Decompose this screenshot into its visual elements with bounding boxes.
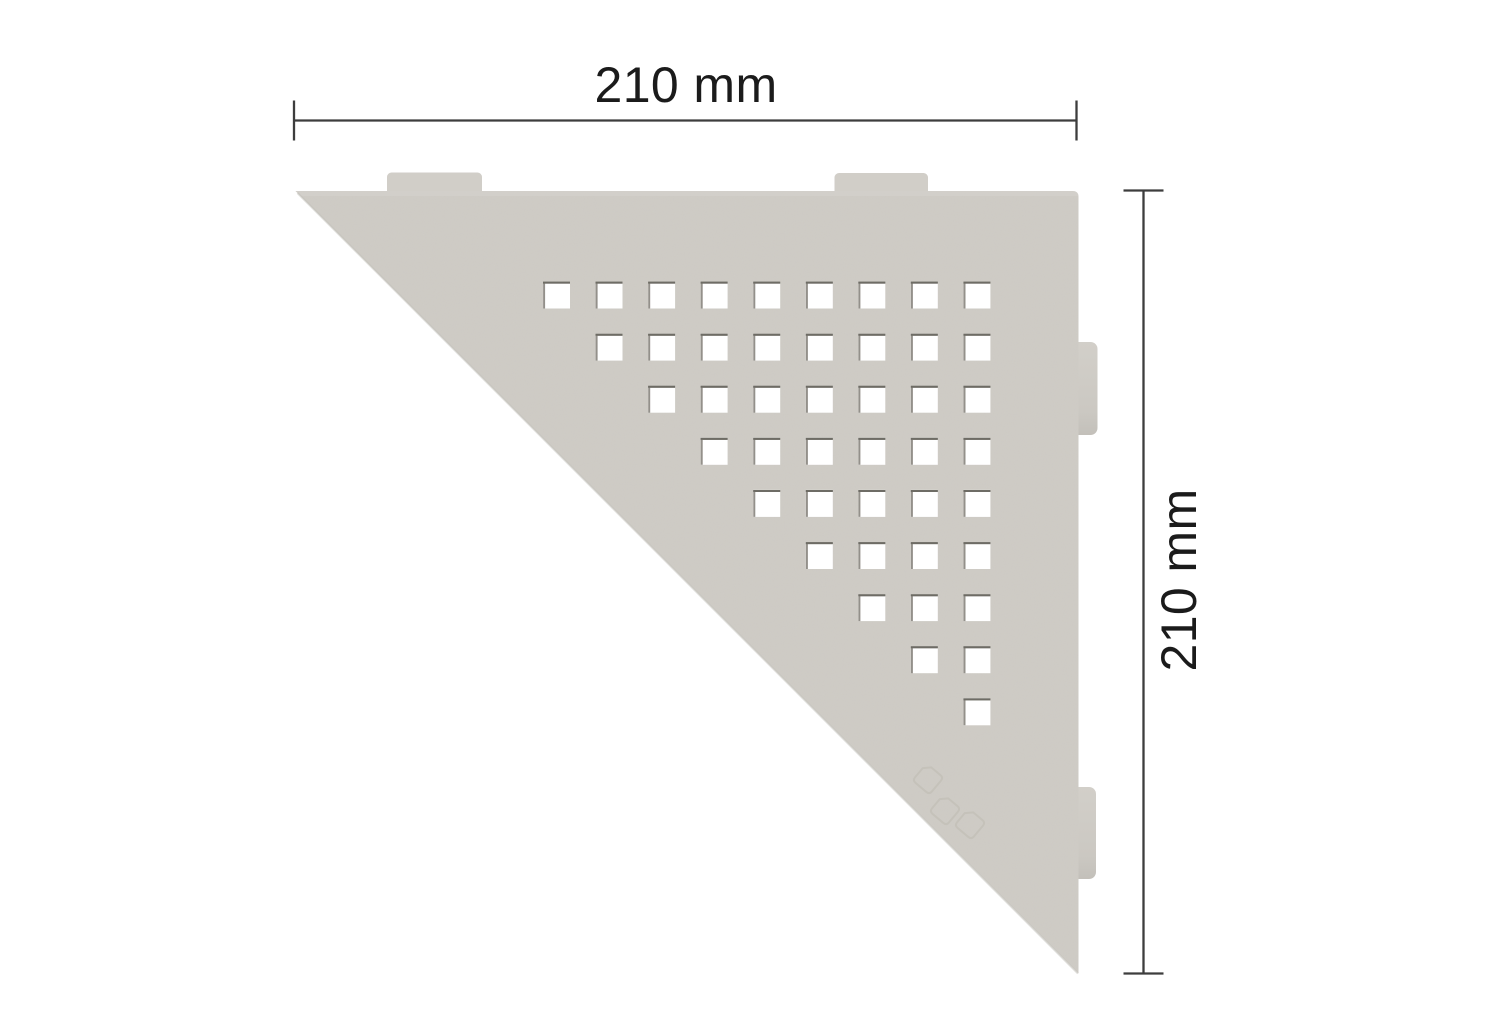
svg-text:210 mm: 210 mm [1151,488,1207,671]
svg-text:210 mm: 210 mm [594,57,777,113]
